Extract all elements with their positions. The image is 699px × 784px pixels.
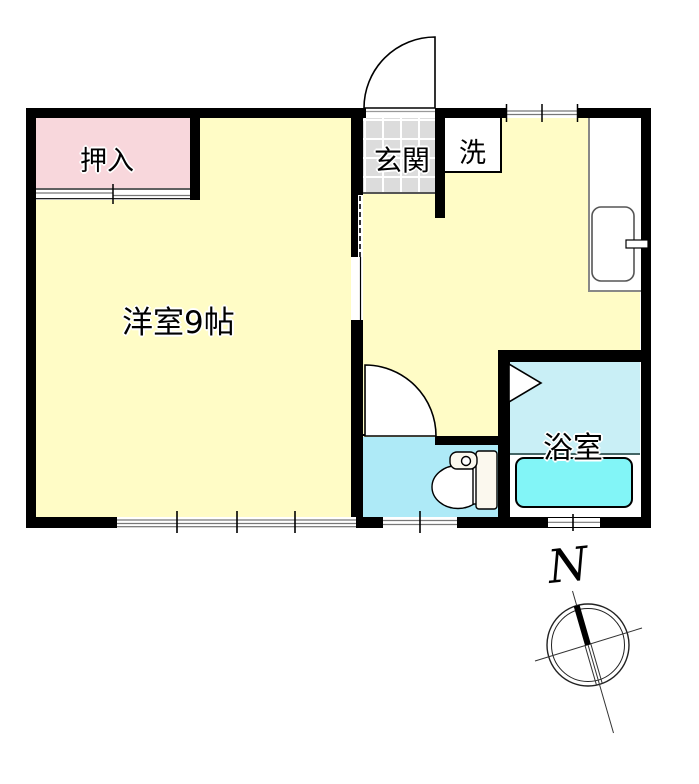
label-bathroom: 浴室	[543, 423, 603, 467]
wall-top-mid	[435, 108, 506, 118]
wall-right	[641, 108, 651, 528]
window-toilet	[383, 517, 457, 528]
label-laundry: 洗	[459, 131, 486, 170]
window-bath	[548, 518, 600, 527]
compass-north-label: N	[545, 536, 591, 594]
closet-sliding-door	[36, 188, 190, 200]
label-western-room: 洋室9帖	[122, 297, 235, 342]
wall-entrance-right	[435, 108, 445, 218]
entrance-threshold	[366, 108, 435, 118]
wall-mid-lower	[351, 320, 363, 517]
compass-icon	[535, 591, 642, 733]
toilet-floor	[363, 437, 499, 517]
floor-plan: 押入 洋室9帖 玄関 洗 浴室 N	[0, 0, 699, 784]
wall-bath-left	[498, 350, 510, 528]
label-entrance: 玄関	[374, 139, 430, 179]
wall-bath-top	[498, 350, 651, 362]
wall-left	[26, 108, 36, 528]
label-closet: 押入	[80, 139, 134, 178]
wall-toilet-top	[435, 436, 500, 445]
toilet-door-sill	[363, 434, 435, 436]
window-top	[506, 108, 578, 118]
wall-closet-right	[190, 108, 200, 200]
window-western-room	[117, 517, 356, 528]
wall-mid-half	[351, 195, 358, 257]
wall-mid-upper	[351, 108, 363, 195]
compass-needle-north	[574, 605, 591, 646]
entrance-door-arc	[364, 37, 435, 108]
kitchen-counter	[588, 118, 642, 292]
